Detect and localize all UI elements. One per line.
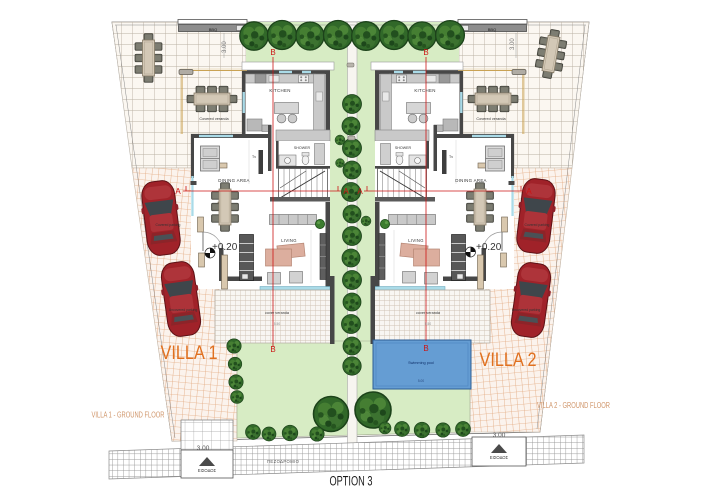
svg-text:B: B — [270, 48, 275, 57]
svg-text:ΕΙΣΟΔΟΣ: ΕΙΣΟΔΟΣ — [198, 468, 217, 473]
svg-text:B: B — [270, 345, 275, 354]
svg-text:VILLA 1: VILLA 1 — [161, 343, 218, 364]
svg-text:B: B — [423, 344, 428, 353]
svg-text:ΠΕΖΟΔΡΟΜΙΟ: ΠΕΖΟΔΡΟΜΙΟ — [267, 459, 300, 464]
svg-text:3.00: 3.00 — [197, 445, 210, 452]
svg-text:Uncovered parking: Uncovered parking — [512, 308, 541, 312]
svg-text:cover veranda: cover veranda — [416, 311, 441, 315]
svg-text:Covered veranda: Covered veranda — [476, 117, 506, 121]
svg-text:A: A — [526, 187, 532, 196]
svg-text:Covered parking: Covered parking — [525, 223, 550, 227]
svg-text:B: B — [423, 48, 428, 57]
svg-text:Uncovered parking: Uncovered parking — [169, 308, 198, 312]
svg-text:SHOWER: SHOWER — [294, 146, 311, 150]
svg-text:A: A — [343, 187, 349, 196]
svg-text:+0.20: +0.20 — [212, 242, 238, 253]
svg-text:KITCHEN: KITCHEN — [269, 88, 290, 93]
svg-text:+0.20: +0.20 — [476, 242, 502, 253]
svg-text:A: A — [357, 187, 363, 196]
svg-text:A: A — [175, 187, 181, 196]
svg-text:3.00: 3.00 — [222, 41, 228, 53]
svg-text:LIVING: LIVING — [408, 238, 424, 243]
svg-text:Covered parking: Covered parking — [156, 223, 181, 227]
svg-text:3.00: 3.00 — [510, 38, 516, 50]
svg-text:cover veranda: cover veranda — [265, 311, 290, 315]
svg-text:KITCHEN: KITCHEN — [414, 88, 435, 93]
svg-text:5.50: 5.50 — [425, 322, 431, 326]
svg-text:Tv: Tv — [252, 155, 256, 159]
svg-text:DINING AREA: DINING AREA — [218, 178, 250, 183]
svg-text:DINING AREA: DINING AREA — [455, 178, 487, 183]
svg-text:SHOWER: SHOWER — [395, 146, 412, 150]
svg-text:5.50: 5.50 — [274, 322, 280, 326]
svg-text:OPTION 3: OPTION 3 — [330, 474, 373, 489]
svg-text:VILLA 2 - GROUND FLOOR: VILLA 2 - GROUND FLOOR — [537, 401, 610, 410]
svg-text:LIVING: LIVING — [281, 238, 297, 243]
svg-text:VILLA 2: VILLA 2 — [480, 350, 537, 371]
svg-text:Covered veranda: Covered veranda — [199, 117, 229, 121]
svg-text:Tv: Tv — [449, 155, 453, 159]
svg-text:VILLA 1 - GROUND FLOOR: VILLA 1 - GROUND FLOOR — [92, 411, 165, 420]
svg-text:ΕΙΣΟΔΟΣ: ΕΙΣΟΔΟΣ — [490, 455, 509, 460]
svg-text:3.00: 3.00 — [493, 432, 506, 439]
svg-text:Swimming pool: Swimming pool — [408, 361, 434, 365]
svg-text:BBQ: BBQ — [209, 27, 217, 32]
svg-text:5.00: 5.00 — [418, 379, 424, 383]
svg-text:BBQ: BBQ — [488, 27, 496, 32]
